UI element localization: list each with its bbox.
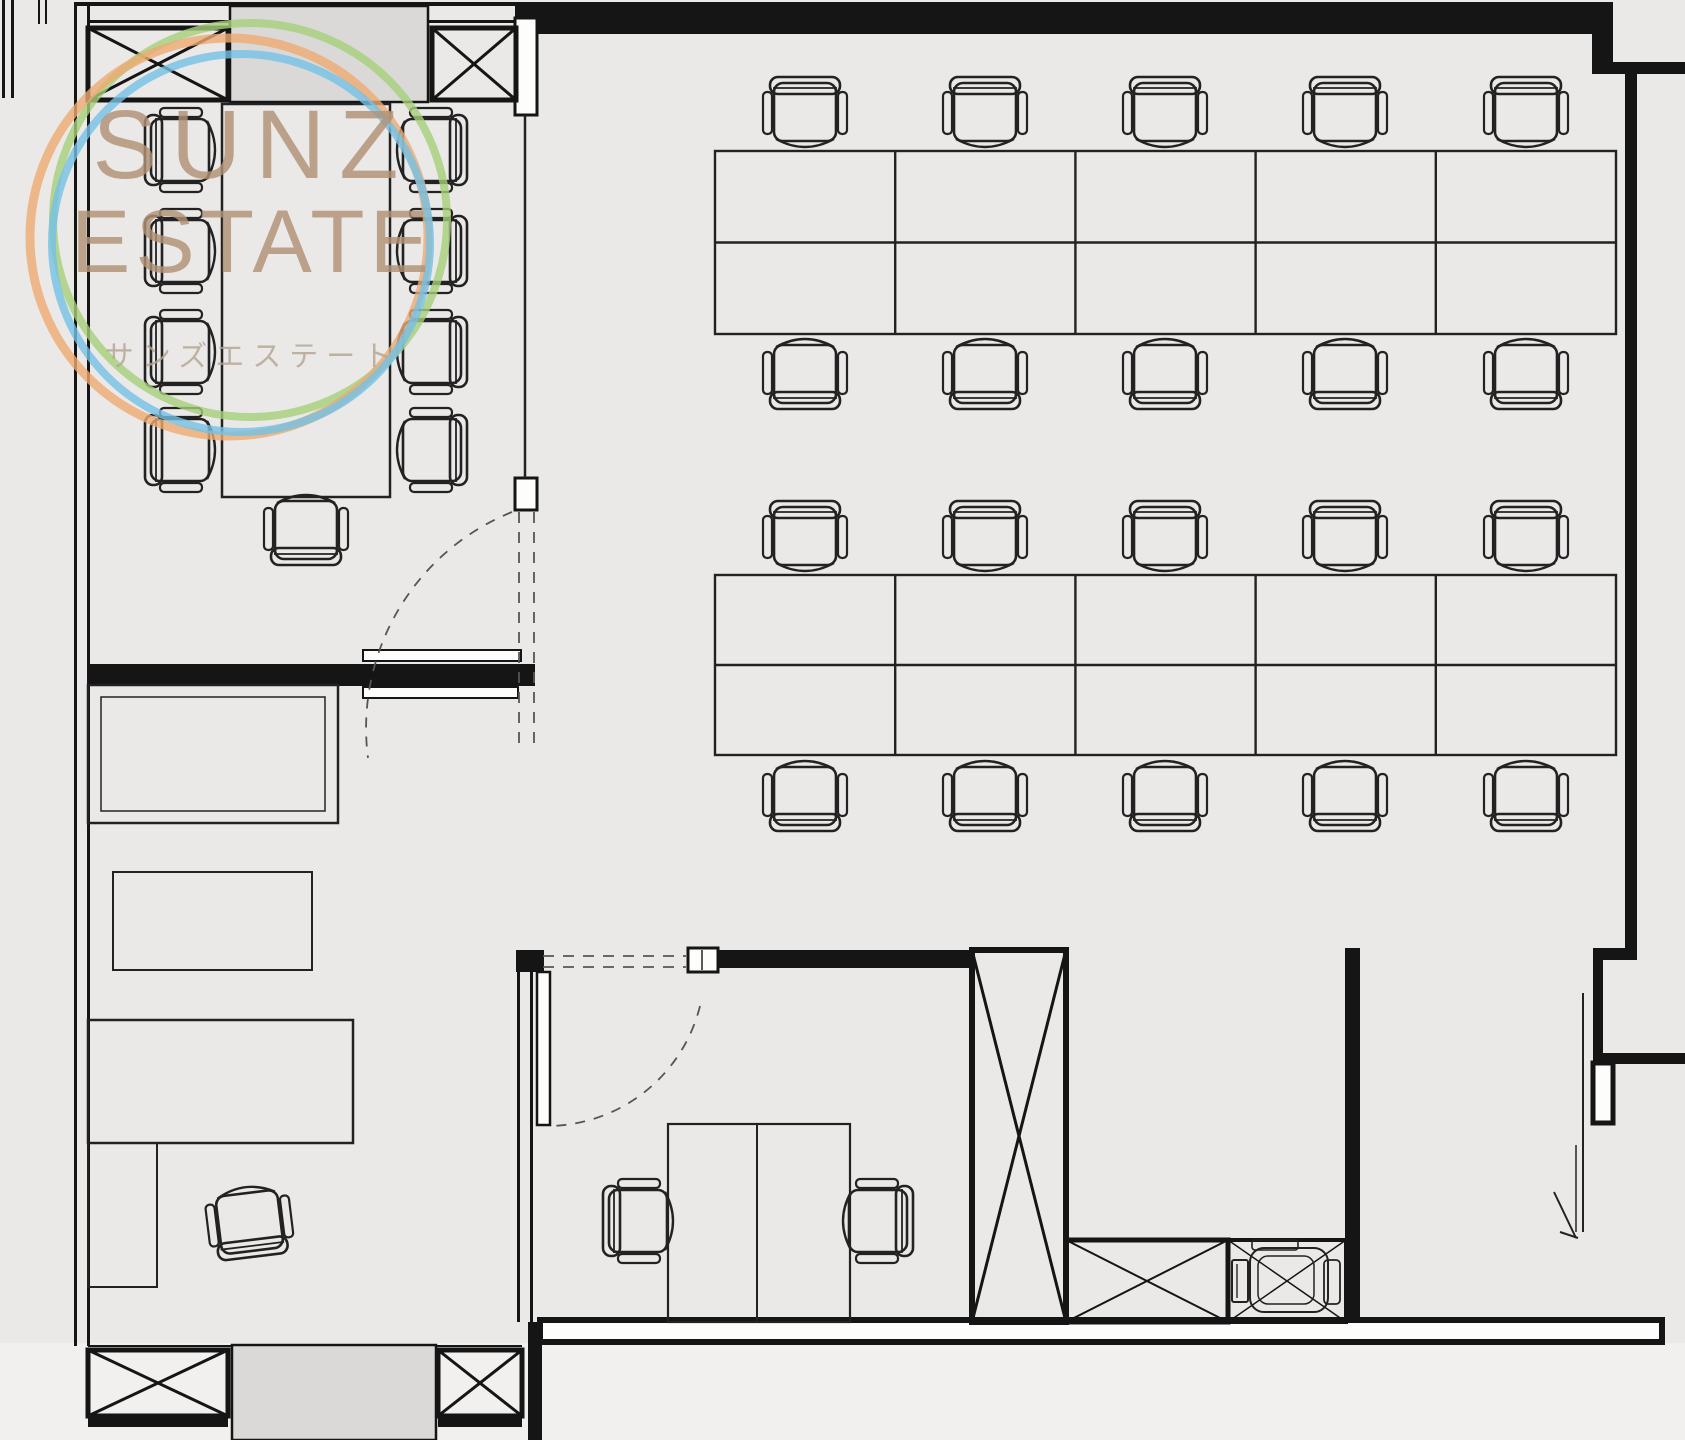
chair-arm bbox=[1559, 92, 1568, 134]
gray-panel bbox=[232, 1345, 436, 1440]
chair bbox=[1303, 77, 1387, 147]
chair-arm bbox=[943, 774, 952, 816]
chair-arm bbox=[1559, 516, 1568, 558]
door-swing-arc bbox=[366, 512, 512, 758]
chair-back bbox=[770, 814, 840, 831]
chair-arm bbox=[1123, 774, 1132, 816]
furniture-rect bbox=[88, 1020, 353, 1143]
chair bbox=[1484, 501, 1568, 571]
chair-seat bbox=[1134, 345, 1196, 403]
chair-seat bbox=[1495, 507, 1557, 565]
chair-back bbox=[1310, 77, 1380, 94]
chair-seat bbox=[1314, 345, 1376, 403]
chair-back bbox=[603, 1186, 620, 1256]
chair-arm bbox=[838, 352, 847, 394]
wall-segment bbox=[2, 0, 5, 98]
toilet-seat bbox=[1324, 1260, 1340, 1304]
chair-arm bbox=[1198, 516, 1207, 558]
furniture-rect bbox=[101, 697, 325, 811]
chair-arm bbox=[160, 385, 202, 394]
chair-arm bbox=[1018, 92, 1027, 134]
chair-seat bbox=[1495, 345, 1557, 403]
chair-arm bbox=[410, 385, 452, 394]
chair-arm bbox=[160, 209, 202, 218]
wall-segment bbox=[716, 950, 974, 968]
chair-back bbox=[896, 1186, 913, 1256]
chair-arm bbox=[1303, 516, 1312, 558]
chair-arm bbox=[943, 516, 952, 558]
chair-seat bbox=[954, 767, 1016, 825]
furniture-rect bbox=[88, 685, 338, 823]
chair-arm bbox=[1303, 92, 1312, 134]
chair bbox=[943, 761, 1027, 831]
chair bbox=[763, 501, 847, 571]
chair-arm bbox=[264, 508, 273, 550]
chair bbox=[1484, 339, 1568, 409]
wall-segment bbox=[530, 952, 533, 1322]
chair-arm bbox=[1378, 516, 1387, 558]
chair-arm bbox=[838, 516, 847, 558]
chair-back bbox=[1310, 814, 1380, 831]
chair-seat bbox=[609, 1190, 667, 1252]
chair-arm bbox=[838, 774, 847, 816]
chair-arm bbox=[763, 516, 772, 558]
chair-seat bbox=[1314, 767, 1376, 825]
chair bbox=[763, 339, 847, 409]
chair bbox=[1123, 501, 1207, 571]
floor-plan-drawing bbox=[0, 0, 1685, 1440]
wall-segment bbox=[11, 0, 14, 98]
chair-arm bbox=[1484, 352, 1493, 394]
chair-back bbox=[1130, 392, 1200, 409]
chair-seat bbox=[774, 767, 836, 825]
chair bbox=[145, 108, 215, 192]
wall-segment bbox=[1613, 62, 1685, 74]
chair bbox=[145, 209, 215, 293]
chair-arm bbox=[160, 310, 202, 319]
watermark-ring bbox=[52, 54, 430, 432]
chair-arm bbox=[1484, 774, 1493, 816]
plan-line bbox=[1554, 1192, 1576, 1238]
chair bbox=[397, 408, 467, 492]
chair-arm bbox=[1018, 774, 1027, 816]
chair bbox=[264, 495, 348, 565]
chair bbox=[1303, 339, 1387, 409]
chair-seat bbox=[151, 220, 209, 282]
chair-arm bbox=[1303, 352, 1312, 394]
chair-arm bbox=[1378, 774, 1387, 816]
chair-arm bbox=[1198, 774, 1207, 816]
chair bbox=[1123, 339, 1207, 409]
chair-back bbox=[450, 216, 467, 286]
chair-arm bbox=[160, 183, 202, 192]
chair-seat bbox=[954, 83, 1016, 141]
chair-seat bbox=[1134, 83, 1196, 141]
chair-arm bbox=[1484, 516, 1493, 558]
chair-arm bbox=[763, 92, 772, 134]
chair-seat bbox=[849, 1190, 907, 1252]
chair-arm bbox=[1198, 352, 1207, 394]
chair-arm bbox=[410, 408, 452, 417]
chair bbox=[603, 1179, 673, 1263]
chair-seat bbox=[774, 507, 836, 565]
furniture-rect bbox=[668, 1124, 850, 1322]
wall-hollow bbox=[515, 478, 537, 510]
chair-back bbox=[1130, 77, 1200, 94]
chair bbox=[763, 77, 847, 147]
chair-arm bbox=[838, 92, 847, 134]
chair-arm bbox=[1559, 774, 1568, 816]
chair-seat bbox=[954, 345, 1016, 403]
chair bbox=[843, 1179, 913, 1263]
chair-back bbox=[145, 115, 162, 185]
chair bbox=[204, 1182, 296, 1262]
chair-back bbox=[770, 501, 840, 518]
chair-back bbox=[1491, 814, 1561, 831]
chair bbox=[763, 761, 847, 831]
chair-seat bbox=[215, 1189, 284, 1254]
wall-hollow bbox=[363, 650, 521, 661]
chair-arm bbox=[1198, 92, 1207, 134]
chair bbox=[1484, 77, 1568, 147]
wall-segment bbox=[515, 6, 1593, 34]
chair-seat bbox=[1314, 83, 1376, 141]
furniture-rect bbox=[88, 1143, 157, 1287]
chair-arm bbox=[1559, 352, 1568, 394]
wall-segment bbox=[88, 664, 535, 686]
chair-arm bbox=[160, 108, 202, 117]
chair-back bbox=[145, 216, 162, 286]
chair bbox=[1484, 761, 1568, 831]
chair-back bbox=[450, 317, 467, 387]
chair-back bbox=[1130, 501, 1200, 518]
chair bbox=[1303, 761, 1387, 831]
chair-arm bbox=[1018, 352, 1027, 394]
chair bbox=[1123, 77, 1207, 147]
chair-arm bbox=[1123, 352, 1132, 394]
chair bbox=[1123, 761, 1207, 831]
chair-back bbox=[950, 392, 1020, 409]
chair-arm bbox=[339, 508, 348, 550]
chair bbox=[145, 310, 215, 394]
chair-back bbox=[450, 115, 467, 185]
wall-hollow bbox=[537, 972, 550, 1125]
chair-seat bbox=[774, 83, 836, 141]
chair-back bbox=[950, 814, 1020, 831]
furniture-rect bbox=[113, 872, 312, 970]
chair-seat bbox=[403, 419, 461, 481]
chair-back bbox=[1310, 392, 1380, 409]
chair-arm bbox=[410, 483, 452, 492]
wall-segment bbox=[1592, 2, 1613, 74]
chair-back bbox=[950, 501, 1020, 518]
chair-seat bbox=[1134, 507, 1196, 565]
chair-back bbox=[1491, 392, 1561, 409]
wall-hollow bbox=[363, 687, 518, 698]
wall-segment bbox=[74, 2, 77, 1346]
chair-arm bbox=[1378, 92, 1387, 134]
door-swing-arc bbox=[550, 1006, 700, 1126]
chair-back bbox=[1491, 501, 1561, 518]
wall-segment bbox=[1593, 958, 1603, 1056]
chair-arm bbox=[943, 92, 952, 134]
chair-seat bbox=[275, 501, 337, 559]
chair-arm bbox=[1303, 774, 1312, 816]
chair-seat bbox=[151, 321, 209, 383]
chair-seat bbox=[1134, 767, 1196, 825]
chair-seat bbox=[954, 507, 1016, 565]
chair-arm bbox=[856, 1254, 898, 1263]
chair-arm bbox=[1123, 516, 1132, 558]
chair-arm bbox=[1378, 352, 1387, 394]
chair-arm bbox=[160, 284, 202, 293]
chair-arm bbox=[763, 774, 772, 816]
chair-arm bbox=[943, 352, 952, 394]
chair-seat bbox=[1314, 507, 1376, 565]
chair-arm bbox=[618, 1254, 660, 1263]
chair-back bbox=[770, 77, 840, 94]
wall-segment bbox=[45, 0, 47, 24]
chair-arm bbox=[618, 1179, 660, 1188]
chair bbox=[1303, 501, 1387, 571]
chair-back bbox=[1130, 814, 1200, 831]
chair-arm bbox=[1123, 92, 1132, 134]
chair-back bbox=[145, 317, 162, 387]
chair-back bbox=[1491, 77, 1561, 94]
chair-arm bbox=[856, 1179, 898, 1188]
chair-arm bbox=[1484, 92, 1493, 134]
chair-back bbox=[1310, 501, 1380, 518]
wall-segment bbox=[1625, 72, 1637, 950]
chair-arm bbox=[1018, 516, 1027, 558]
chair-seat bbox=[1495, 83, 1557, 141]
chair-back bbox=[450, 415, 467, 485]
chair-seat bbox=[1495, 767, 1557, 825]
chair bbox=[943, 339, 1027, 409]
chair-seat bbox=[151, 119, 209, 181]
chair bbox=[943, 77, 1027, 147]
floor-plan-canvas: SUNZ ESTATE サンズエステート bbox=[0, 0, 1685, 1440]
chair-seat bbox=[774, 345, 836, 403]
chair-arm bbox=[763, 352, 772, 394]
chair bbox=[943, 501, 1027, 571]
toilet-tank bbox=[1232, 1260, 1248, 1302]
wall-hollow bbox=[688, 948, 718, 972]
chair-back bbox=[271, 548, 341, 565]
wall-segment bbox=[517, 952, 520, 1322]
wall-hollow bbox=[1593, 1063, 1613, 1123]
chair-back bbox=[950, 77, 1020, 94]
chair-arm bbox=[160, 483, 202, 492]
wall-segment bbox=[38, 0, 40, 24]
chair-back bbox=[770, 392, 840, 409]
